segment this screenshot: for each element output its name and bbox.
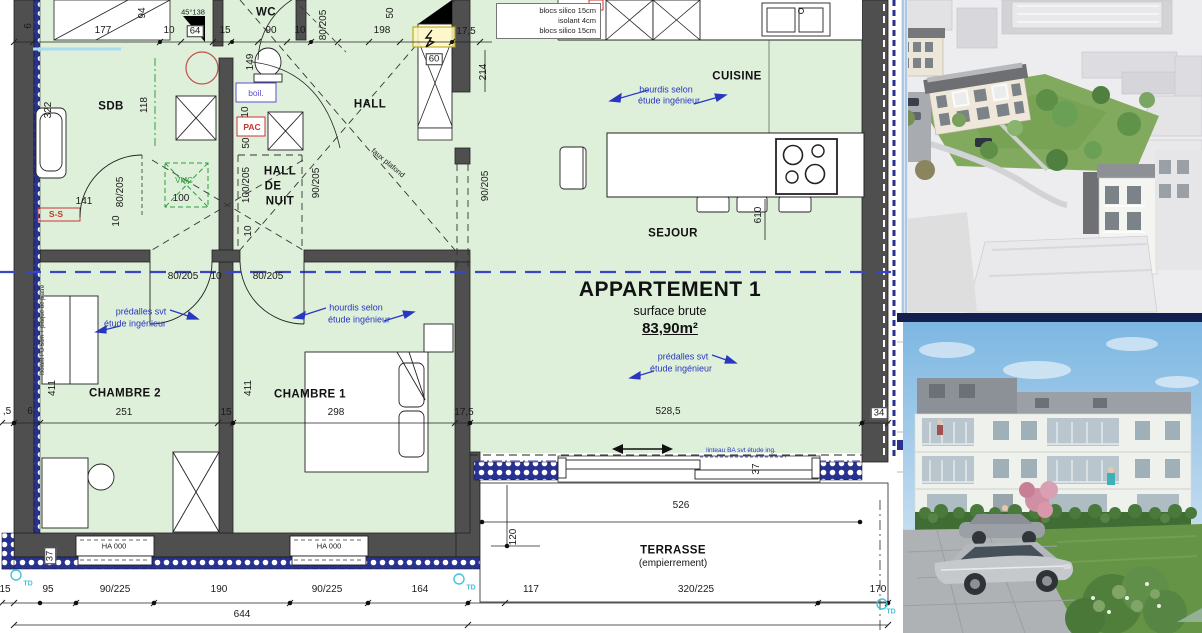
nightstand	[424, 324, 453, 352]
dryer-unit	[176, 96, 216, 140]
heat-pump	[237, 117, 265, 136]
render-panel	[897, 0, 1202, 633]
wall-composition-note: blocs silico 15cm isolant 4cm blocs sili…	[496, 3, 601, 39]
pac-unit-box	[268, 112, 303, 150]
street-view-render	[897, 322, 1202, 633]
bathtub	[36, 108, 66, 178]
kitchen-sink	[762, 3, 830, 36]
sdb-counter	[54, 0, 170, 40]
materials-line: blocs silico 15cm	[501, 6, 596, 16]
aerial-site-render	[897, 0, 1202, 313]
terrasse-outline	[480, 483, 888, 602]
boiler	[236, 83, 276, 102]
materials-line: isolant 4cm	[501, 16, 596, 26]
floor-plan: 6177941045°1386415WC901080/2051985017,56…	[0, 0, 897, 633]
render-divider-band	[897, 313, 1202, 322]
wardrobe	[173, 452, 219, 532]
apartment-title: APPARTEMENT 1	[540, 278, 800, 302]
apartment-title-block: APPARTEMENT 1 surface brute 83,90m²	[540, 278, 800, 337]
apartment-area: 83,90m²	[540, 320, 800, 337]
floor-plan-sheet: 6177941045°1386415WC901080/2051985017,56…	[0, 0, 1202, 633]
materials-line: blocs silico 15cm	[501, 26, 596, 36]
chair	[88, 464, 114, 490]
apartment-subtitle: surface brute	[540, 304, 800, 318]
